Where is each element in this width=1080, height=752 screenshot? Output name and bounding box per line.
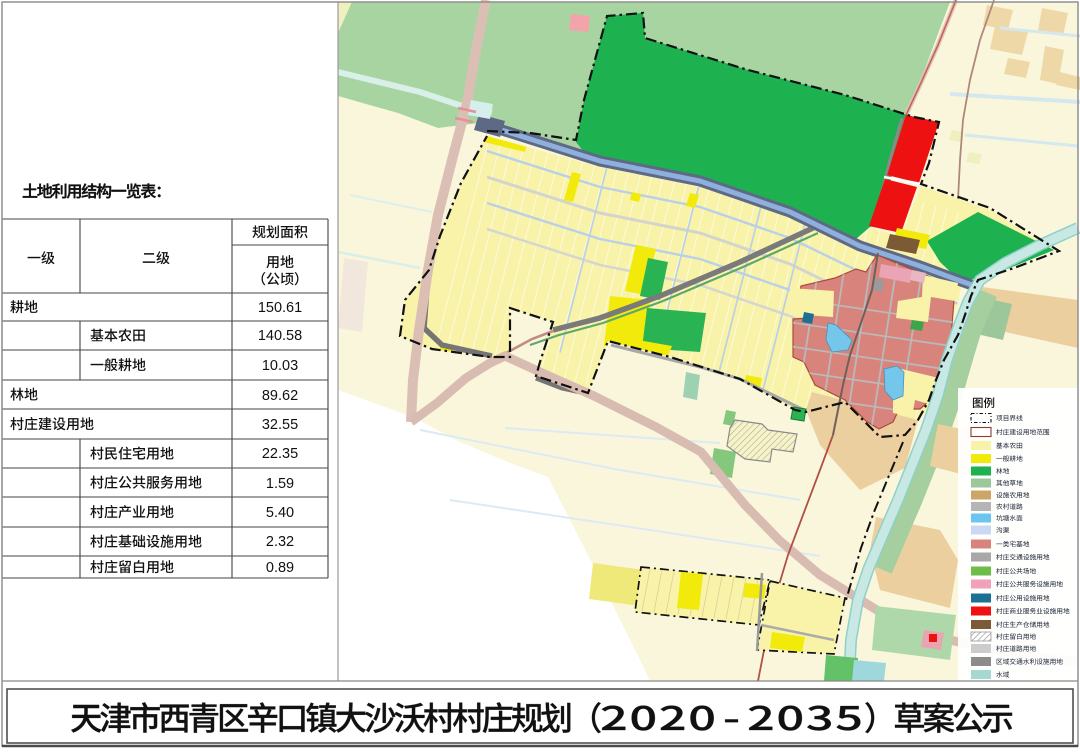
svg-text:89.62: 89.62	[262, 388, 298, 404]
svg-text:32.55: 32.55	[262, 417, 298, 433]
svg-text:22.35: 22.35	[262, 446, 298, 462]
svg-text:5.40: 5.40	[266, 505, 294, 521]
svg-text:1.59: 1.59	[266, 476, 294, 492]
svg-text:140.58: 140.58	[258, 328, 302, 344]
svg-text:150.61: 150.61	[258, 300, 302, 316]
svg-text:2.32: 2.32	[266, 534, 294, 550]
svg-text:10.03: 10.03	[262, 358, 298, 374]
svg-text:0.89: 0.89	[266, 560, 294, 576]
